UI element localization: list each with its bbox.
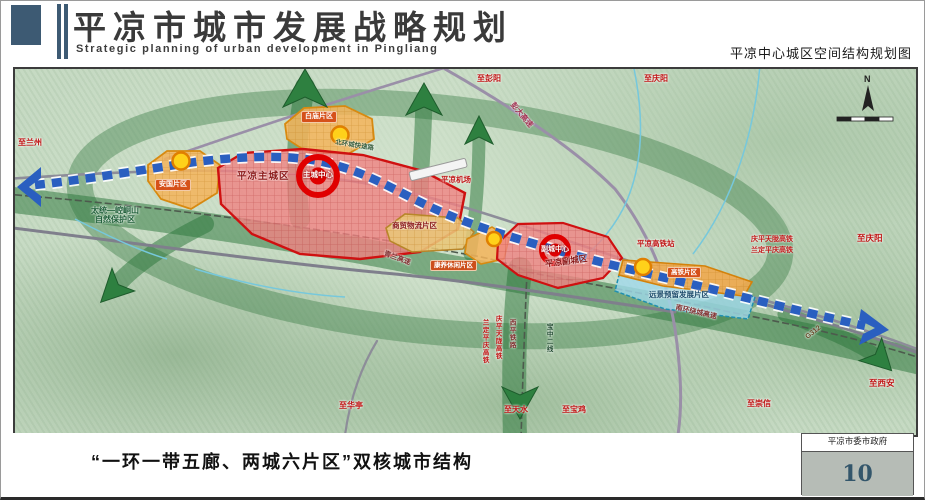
label-district-anguo: 安国片区 bbox=[155, 179, 191, 191]
label-district-baimiao: 白庙片区 bbox=[301, 111, 337, 123]
page-title: 平凉市城市发展战略规划 bbox=[73, 1, 513, 49]
page-number: 10 bbox=[802, 452, 913, 496]
label-qingping-hsr-east: 庆平天陇高铁 bbox=[751, 236, 793, 244]
header: 平凉市城市发展战略规划 Strategic planning of urban … bbox=[1, 1, 925, 63]
label-to-chongxin: 至崇信 bbox=[747, 400, 771, 409]
label-sub-core: 副城中心 bbox=[533, 246, 577, 254]
label-to-pengyang: 至彭阳 bbox=[477, 75, 501, 84]
district-trade-logistics bbox=[386, 214, 474, 252]
label-to-qingyang-north: 至庆阳 bbox=[644, 75, 668, 84]
label-to-lanzhou: 至兰州 bbox=[18, 139, 42, 148]
label-landing-hsr-south: 兰定平庆高铁 bbox=[481, 319, 488, 364]
structure-caption: “一环一带五廊、两城六片区”双核城市结构 bbox=[91, 448, 473, 474]
title-block: 平凉市委市政府 10 bbox=[801, 433, 914, 495]
agency-name: 平凉市委市政府 bbox=[802, 434, 913, 452]
nature-reserve-line2: 自然保护区 bbox=[73, 216, 157, 225]
label-main-city: 平凉主城区 bbox=[237, 172, 290, 182]
label-trade-logistics: 商贸物流片区 bbox=[392, 222, 437, 230]
label-to-huating: 至华亭 bbox=[339, 402, 363, 411]
label-xiping-railway: 西平铁路 bbox=[508, 319, 515, 349]
logo-bar-1 bbox=[57, 4, 61, 59]
planning-map: N 至兰州 至彭阳 至庆阳 至庆阳 至西安 至崇信 至华亭 至天水 至宝鸡 太统… bbox=[13, 67, 918, 437]
compass-icon: N bbox=[862, 74, 874, 111]
label-airport: 平凉机场 bbox=[441, 176, 471, 184]
label-to-baoji: 至宝鸡 bbox=[562, 406, 586, 415]
logo-bar-2 bbox=[64, 4, 68, 59]
label-leisure: 康养休闲片区 bbox=[430, 260, 477, 271]
label-hsr-district: 高铁片区 bbox=[667, 267, 701, 278]
footer: “一环一带五廊、两城六片区”双核城市结构 平凉市委市政府 10 bbox=[13, 433, 914, 498]
label-reserved-district: 远景预留发展片区 bbox=[649, 291, 709, 299]
map-sheet-title: 平凉中心城区空间结构规划图 bbox=[730, 43, 912, 62]
svg-text:N: N bbox=[864, 74, 871, 84]
scale-bar bbox=[837, 117, 893, 121]
planning-sheet: 平凉市城市发展战略规划 Strategic planning of urban … bbox=[0, 0, 925, 500]
label-to-xian: 至西安 bbox=[869, 379, 895, 388]
label-main-core: 主城中心 bbox=[296, 171, 340, 179]
label-qingping-hsr-south: 庆平天陇高铁 bbox=[494, 315, 501, 360]
label-baozhong-line: 宝中二线 bbox=[545, 323, 552, 353]
label-nature-reserve: 太统—崆峒山 自然保护区 bbox=[73, 207, 157, 225]
label-to-tianshui: 至天水 bbox=[504, 406, 528, 415]
label-landing-hsr-east: 兰定平庆高铁 bbox=[751, 247, 793, 255]
label-hsr-station: 平凉高铁站 bbox=[637, 240, 675, 248]
logo-square bbox=[11, 5, 41, 45]
page-subtitle: Strategic planning of urban development … bbox=[76, 43, 439, 55]
label-to-qingyang-east: 至庆阳 bbox=[857, 234, 883, 243]
